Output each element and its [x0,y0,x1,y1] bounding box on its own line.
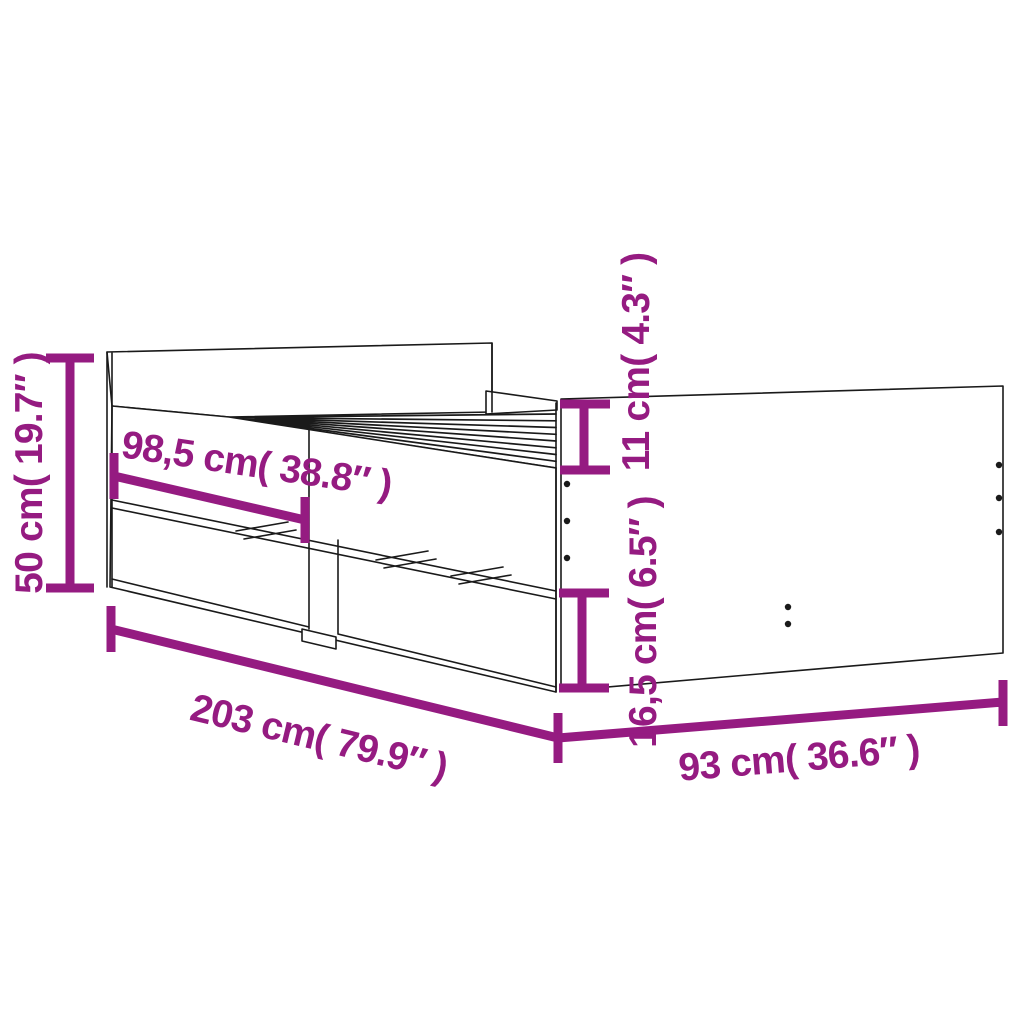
headboard-panel [107,343,492,417]
screw-hole [996,462,1002,468]
screw-hole [564,481,570,487]
dimension-label-drawer-height: 16,5 cm( 6.5″ ) [622,496,665,748]
dimension-label-side-rail-height: 11 cm( 4.3″ ) [615,253,658,472]
screw-hole [785,604,791,610]
diagram-canvas: 50 cm( 19.7″ ) 98,5 cm( 38.8″ ) 11 cm( 4… [0,0,1024,1024]
bed-line-art [107,343,1003,692]
dim-line-height-50 [46,358,94,588]
dimension-label-height: 50 cm( 19.7″ ) [8,352,51,594]
screw-hole [996,495,1002,501]
screw-hole [564,555,570,561]
dimension-label-width: 93 cm( 36.6″ ) [677,727,921,789]
screw-hole [996,529,1002,535]
bed-frame-dimension-diagram: 50 cm( 19.7″ ) 98,5 cm( 38.8″ ) 11 cm( 4… [0,0,1024,1024]
screw-hole [785,621,791,627]
screw-hole [564,518,570,524]
foot-rail [486,391,557,414]
